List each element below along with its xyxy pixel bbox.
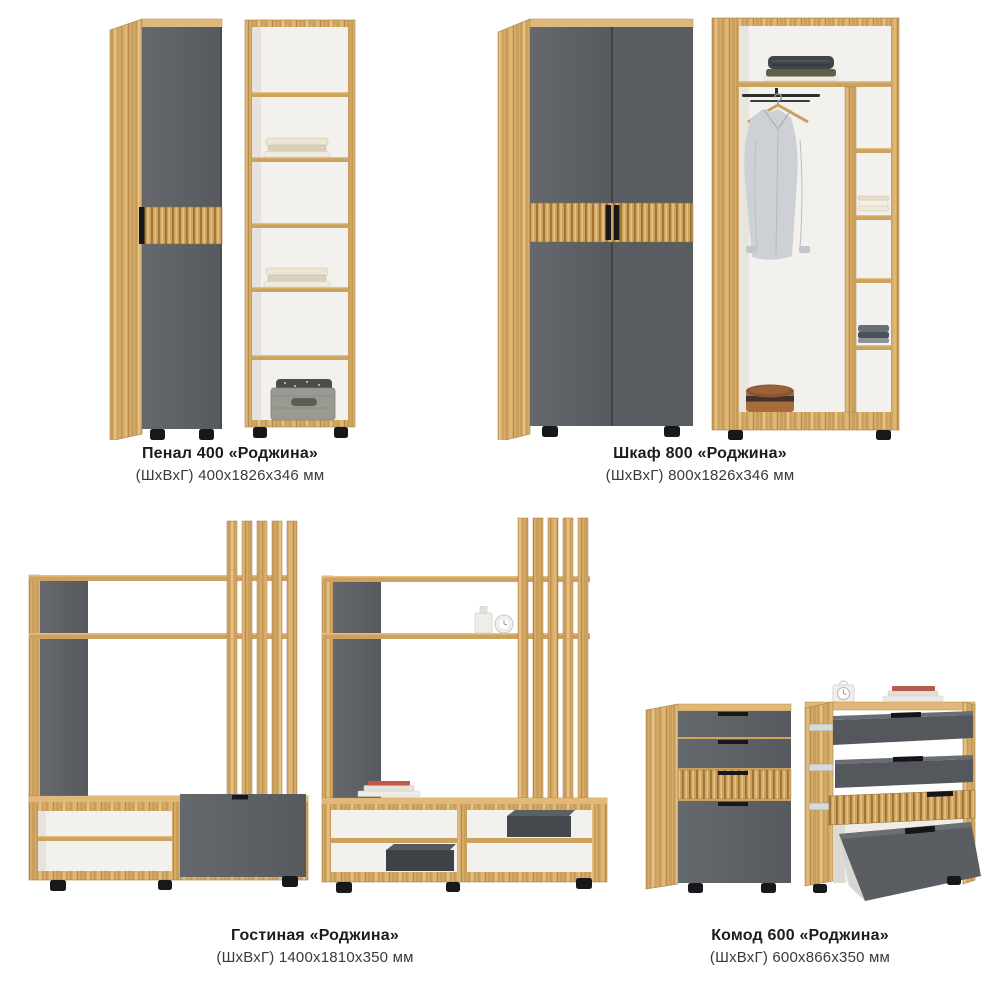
catalog-page: Пенал 400 «Роджина» (ШхВхГ) 400х1826х346…	[0, 0, 1000, 1000]
books-stack	[883, 686, 943, 701]
gostinaya-foot	[158, 880, 172, 890]
product-dims: (ШхВхГ) 800х1826х346 мм	[490, 466, 910, 485]
shelf-foot	[334, 427, 348, 438]
penal-illustration	[95, 10, 365, 440]
caption-komod: Комод 600 «Роджина» (ШхВхГ) 600х866х350 …	[625, 926, 975, 967]
folded-towels	[264, 268, 330, 287]
penal-door-handle	[139, 207, 145, 244]
komod-closed	[646, 704, 791, 893]
penal-foot	[199, 429, 214, 440]
penal-closed-cabinet	[110, 19, 222, 440]
folded-towels	[264, 138, 330, 157]
slat-panel	[518, 518, 588, 800]
shkaf-door-handle	[606, 205, 612, 240]
shkaf-door-handle	[614, 205, 620, 240]
open-drawer-top	[809, 711, 973, 745]
komod-illustration	[633, 672, 985, 904]
caption-gostinaya: Гостиная «Роджина» (ШхВхГ) 1400х1810х350…	[20, 926, 610, 967]
tv-stand-closed	[29, 794, 308, 891]
caption-shkaf: Шкаф 800 «Роджина» (ШхВхГ) 800х1826х346 …	[490, 444, 910, 485]
shkaf-illustration	[480, 10, 900, 440]
product-name: Комод 600 «Роджина»	[625, 926, 975, 946]
gostinaya-foot	[336, 882, 352, 893]
gostinaya-foot	[50, 880, 66, 891]
product-name: Гостиная «Роджина»	[20, 926, 610, 946]
open-drawer-middle	[809, 755, 973, 788]
slat-panel	[227, 521, 297, 798]
product-dims: (ШхВхГ) 400х1826х346 мм	[95, 466, 365, 485]
tv-stand-open	[322, 781, 607, 893]
gostinaya-view-open	[322, 518, 607, 893]
komod-foot	[688, 883, 703, 893]
shelf-foot	[253, 427, 267, 438]
folded-linen	[858, 196, 889, 211]
alarm-clock-lantern	[833, 681, 854, 702]
gostinaya-foot	[446, 882, 460, 892]
shkaf-closed	[498, 19, 693, 440]
folded-sweaters	[764, 56, 838, 81]
storage-box	[507, 810, 575, 837]
open-flap-door	[839, 822, 981, 901]
tv-stand-door-handle	[232, 795, 248, 800]
product-name: Пенал 400 «Роджина»	[95, 444, 365, 464]
product-dims: (ШхВхГ) 1400х1810х350 мм	[20, 948, 610, 967]
gostinaya-foot	[282, 876, 298, 887]
penal-open-shelf-unit	[245, 20, 355, 438]
komod-foot	[813, 884, 827, 893]
gostinaya-view-closed	[29, 521, 308, 891]
shkaf-foot	[542, 426, 558, 437]
shkaf-foot	[876, 430, 891, 440]
komod-foot	[947, 876, 961, 885]
shelf-decor	[475, 607, 513, 634]
gostinaya-illustration	[20, 516, 610, 908]
shkaf-foot	[728, 430, 743, 440]
storage-basket	[271, 379, 335, 420]
caption-penal: Пенал 400 «Роджина» (ШхВхГ) 400х1826х346…	[95, 444, 365, 485]
shkaf-open	[712, 18, 899, 440]
product-name: Шкаф 800 «Роджина»	[490, 444, 910, 464]
storage-box	[386, 844, 456, 871]
penal-foot	[150, 429, 165, 440]
product-dims: (ШхВхГ) 600х866х350 мм	[625, 948, 975, 967]
komod-open	[805, 681, 981, 901]
gostinaya-foot	[576, 878, 592, 889]
round-leather-box	[746, 385, 794, 413]
folded-jeans	[858, 325, 889, 343]
komod-foot	[761, 883, 776, 893]
shkaf-foot	[664, 426, 680, 437]
